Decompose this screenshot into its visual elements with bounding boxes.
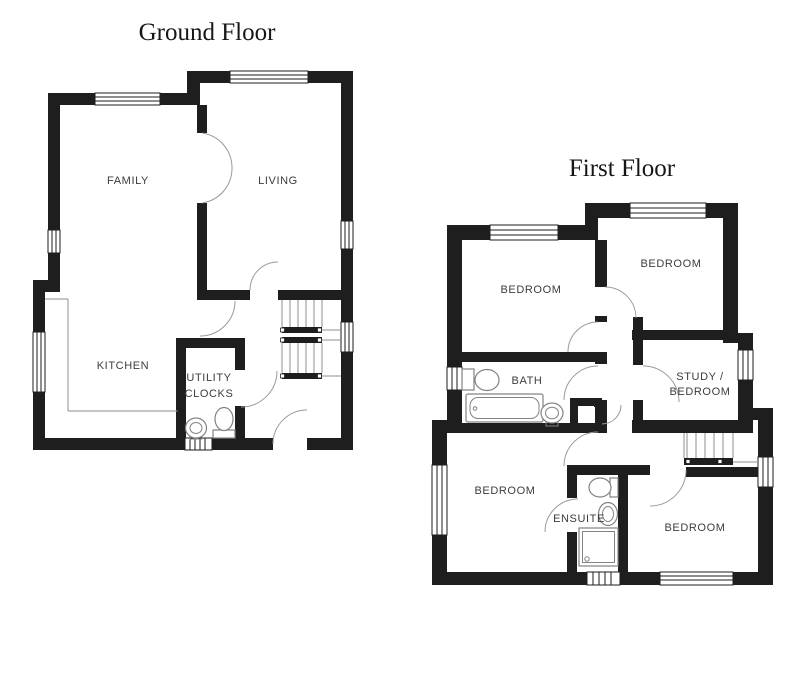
window (447, 367, 462, 390)
window (48, 230, 60, 253)
window (587, 572, 620, 585)
window (33, 332, 45, 392)
room-label-kitchen: KITCHEN (97, 360, 149, 372)
room-label-living: LIVING (258, 175, 298, 187)
sink-fixture (186, 418, 207, 439)
kitchen-counter-line (45, 299, 178, 411)
window (490, 225, 558, 240)
window (230, 71, 308, 83)
window (630, 203, 706, 218)
door-arc (273, 410, 307, 444)
shower-fixture (579, 528, 618, 566)
floorplan-svg: Ground Floor First Floor FAMILY LIVING K… (0, 0, 800, 680)
door-arc (605, 287, 636, 318)
floor-title-ground: Ground Floor (139, 19, 276, 46)
window (341, 221, 353, 249)
door-arc (241, 371, 277, 407)
room-label-bedroom-ne: BEDROOM (640, 258, 701, 270)
bathtub-fixture (466, 394, 543, 422)
toilet-fixture (213, 408, 235, 439)
room-label-utility-line2: CLOCKS (185, 388, 234, 400)
door-arc (200, 301, 235, 336)
door-arc (202, 168, 232, 203)
room-label-study-line2: BEDROOM (669, 386, 730, 398)
room-label-bedroom-sw: BEDROOM (474, 485, 535, 497)
window (758, 457, 773, 487)
room-label-bath: BATH (512, 375, 543, 387)
window (185, 438, 212, 450)
window (95, 93, 160, 105)
window (738, 350, 753, 380)
door-arc (202, 133, 232, 168)
room-label-study-line1: STUDY / (676, 371, 724, 383)
room-label-ensuite: ENSUITE (553, 513, 605, 525)
window (341, 322, 353, 352)
toilet-fixture (589, 478, 618, 497)
room-label-family: FAMILY (107, 175, 149, 187)
floorplan-page: Ground Floor First Floor FAMILY LIVING K… (0, 0, 800, 680)
toilet-fixture (462, 369, 499, 391)
door-arc (564, 366, 598, 400)
room-label-utility-line1: UTILITY (186, 372, 231, 384)
window (432, 465, 447, 535)
door-arc (568, 322, 598, 352)
door-arc (564, 432, 598, 466)
window (660, 572, 733, 585)
door-arc (650, 470, 686, 506)
room-label-bedroom-nw: BEDROOM (500, 284, 561, 296)
door-arc (250, 262, 278, 290)
room-label-bedroom-se: BEDROOM (664, 522, 725, 534)
sink-fixture (541, 403, 563, 426)
floor-title-first: First Floor (569, 155, 676, 182)
